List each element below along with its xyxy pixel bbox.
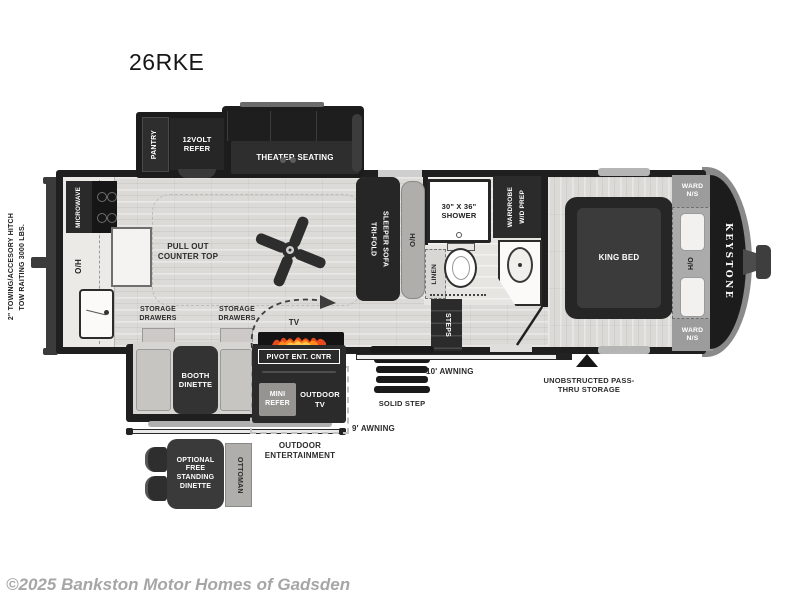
ward-ns-top-label: WARD N/S xyxy=(678,183,708,200)
kitchen-overhead-label: O/H xyxy=(74,259,84,274)
theater-cupholder-2 xyxy=(290,157,296,163)
pantry-label: PANTRY xyxy=(151,130,160,159)
tow-hitch-label: 2" TOWING/ACCESORY HITCH TOW RAITING 300… xyxy=(2,196,34,338)
passthru-arrow-icon xyxy=(576,354,598,367)
storage-drawers-left-label: STORAGE DRAWERS xyxy=(127,306,189,324)
wardrobe-ns-top: WARD N/S xyxy=(672,175,713,207)
awning-main-bar xyxy=(356,354,572,360)
floorplan-page: 26RKE ©2025 Bankston Motor Homes of Gads… xyxy=(0,0,800,600)
stove-icon xyxy=(92,181,117,233)
pivot-ent-cntr-box: PIVOT ENT. CNTR xyxy=(258,349,340,364)
optional-dinette-chair-1 xyxy=(145,447,167,472)
brand-label: KEYSTONE xyxy=(723,223,733,300)
steps-label: STEPS xyxy=(442,313,451,337)
refrigerator: 12VOLT REFER xyxy=(170,118,224,170)
bathroom-sink-drain xyxy=(518,263,522,267)
sofa-overhead-cabinet: O/H xyxy=(401,181,425,299)
microwave: MICROWAVE xyxy=(66,181,92,233)
mini-refer: MINI REFER xyxy=(259,383,296,416)
ho-drawer-top xyxy=(680,213,705,251)
wardrobe-label-line1: WARDROBE xyxy=(507,187,515,227)
booth-dinette-table: BOOTH DINETTE xyxy=(173,346,218,414)
linen-label: LINEN xyxy=(431,264,439,285)
rear-bumper xyxy=(46,180,56,352)
sofa-label-line2: SLEEPER SOFA xyxy=(380,211,389,267)
shower-label: 30" X 36" SHOWER xyxy=(436,202,482,221)
passthru-storage-label: UNOBSTRUCTED PASS-THRU STORAGE xyxy=(533,376,645,395)
ho-label: H/O xyxy=(688,257,697,270)
interior-steps: STEPS xyxy=(431,299,462,351)
fireplace-flames-icon xyxy=(268,332,334,346)
tri-fold-sofa: TRI-FOLD SLEEPER SOFA xyxy=(356,177,400,301)
ward-ns-bottom-label: WARD N/S xyxy=(678,327,708,344)
refer-label: 12VOLT REFER xyxy=(177,135,217,154)
awning-main-label: 10' AWNING xyxy=(426,367,474,377)
outdoor-tv: OUTDOOR TV xyxy=(298,383,342,416)
microwave-label: MICROWAVE xyxy=(75,187,83,228)
ho-drawer-bottom xyxy=(680,277,705,317)
bath-bedroom-wall xyxy=(541,177,548,307)
outdoor-tv-label: OUTDOOR TV xyxy=(298,390,342,409)
optional-dinette-table: OPTIONAL FREE STANDING DINETTE xyxy=(167,439,224,509)
kingpin-knob xyxy=(756,245,771,279)
pivot-ent-cntr-label: PIVOT ENT. CNTR xyxy=(266,352,331,361)
entry-door-opening xyxy=(490,344,532,352)
booth-dinette-label: BOOTH DINETTE xyxy=(176,371,216,390)
theater-seat-back xyxy=(227,111,359,141)
wardrobe-ns-bottom: WARD N/S xyxy=(672,319,713,351)
refrigerator-door-arc xyxy=(178,169,216,178)
solid-step-tread xyxy=(376,376,428,383)
window-top xyxy=(378,170,422,177)
solid-step-tread xyxy=(374,386,430,393)
solid-step-tread xyxy=(370,346,434,353)
solid-step-label: SOLID STEP xyxy=(366,399,438,408)
awning-rear-label: 9' AWNING xyxy=(352,424,395,434)
kitchen-overhead-label-box: O/H xyxy=(68,244,90,288)
shower-drain-icon xyxy=(456,232,462,238)
ottoman: OTTOMAN xyxy=(225,443,252,507)
bath-dotted-threshold xyxy=(430,294,486,296)
optional-dinette-chair-2 xyxy=(145,476,167,501)
ceiling-fan-icon xyxy=(250,212,330,290)
sofa-overhead-label: O/H xyxy=(408,233,417,247)
toilet-seat xyxy=(452,256,470,280)
mini-refer-label: MINI REFER xyxy=(263,391,293,409)
page-title: 26RKE xyxy=(129,49,204,76)
theater-cupholder-1 xyxy=(280,157,286,163)
pantry-cabinet: PANTRY xyxy=(142,117,169,172)
dinette-bench-left xyxy=(136,349,171,411)
bedroom-trim-bottom xyxy=(598,346,650,354)
bedroom-trim-top xyxy=(598,168,650,176)
solid-step-tread xyxy=(376,366,428,373)
ho-label-box: H/O xyxy=(678,251,707,277)
storage-drawers-right-label: STORAGE DRAWERS xyxy=(206,306,268,324)
awning-main-cap-right xyxy=(556,353,572,360)
ent-center-divider xyxy=(262,371,336,373)
tow-hitch-line1: 2" TOWING/ACCESORY HITCH xyxy=(8,213,17,320)
linen-cabinet: LINEN xyxy=(425,249,446,299)
copyright-text: ©2025 Bankston Motor Homes of Gadsden xyxy=(6,575,350,595)
optional-dinette-label: OPTIONAL FREE STANDING DINETTE xyxy=(173,457,219,492)
ottoman-label: OTTOMAN xyxy=(234,457,243,494)
awning-rear-cap-left xyxy=(126,428,133,435)
theater-slide-trim xyxy=(240,102,324,107)
theater-armrest xyxy=(352,114,362,172)
king-bed-label: KING BED xyxy=(599,253,640,263)
sofa-label-line1: TRI-FOLD xyxy=(368,222,377,256)
tow-hitch-line2: TOW RAITING 3000 LBS. xyxy=(19,224,28,311)
kitchen-sink xyxy=(79,289,114,339)
wardrobe-label-line2: W/D PREP xyxy=(519,190,527,224)
wardrobe-wd-prep: WARDROBE W/D PREP xyxy=(493,176,541,238)
dinette-bench-right xyxy=(220,349,252,411)
tv-label: TV xyxy=(280,318,308,328)
king-bed: KING BED xyxy=(565,197,673,319)
outdoor-entertainment-label: OUTDOOR ENTERTAINMENT xyxy=(250,441,350,461)
